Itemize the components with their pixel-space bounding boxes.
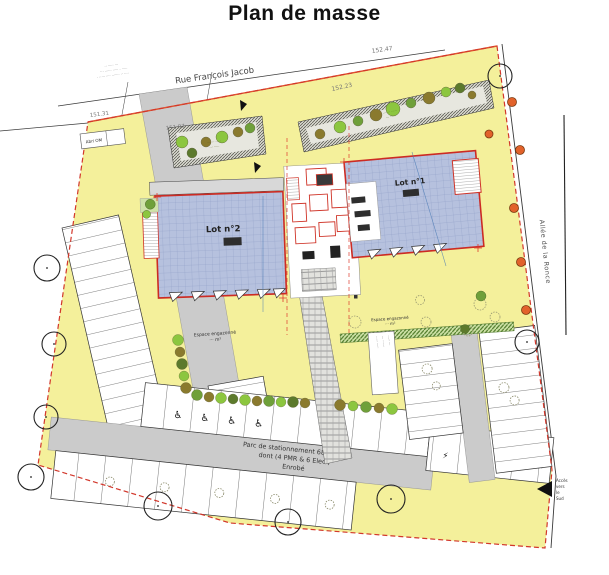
street-note: ·· ····· ··· ··· ······ ····· · ····· · … [95, 61, 129, 79]
building-lot1: Lot n°1 [344, 150, 486, 260]
svg-text:vers: vers [556, 484, 565, 489]
wheelchair-icon: ♿ [173, 410, 183, 422]
dim-151-31: 151.31 [90, 111, 110, 119]
lot1-stair [452, 158, 481, 194]
lot2-stair-annex [143, 212, 160, 258]
wheelchair-icon: ♿ [254, 418, 264, 430]
dim-152-47: 152.47 [371, 45, 393, 55]
site-plan-drawing: ♿ ♿ ♿ ♿ ⚡ ⚡ ⚡ ⚡ ⚡ Parc de stationnement … [0, 0, 609, 575]
svg-text:le: le [556, 490, 560, 495]
lot2-label: Lot n°2 [206, 224, 241, 235]
street-east-label: Allée de la Ronce [538, 219, 553, 284]
lot2-core [223, 237, 241, 246]
lot2-roof [155, 192, 286, 298]
east-stall-col-left [399, 344, 464, 440]
wheelchair-icon: ♿ [227, 415, 237, 427]
svg-text:··· m²: ··· m² [209, 338, 221, 344]
path-note-box: ····· ····· ··· ······ ····· ··· [368, 331, 398, 395]
lawn-marker [354, 295, 358, 299]
lot1-core [403, 189, 420, 197]
wheelchair-icon: ♿ [200, 413, 210, 425]
building-lot2: Lot n°2 [139, 178, 287, 303]
svg-text:Sud: Sud [556, 496, 564, 501]
plan-de-masse-page: Plan de masse [0, 0, 609, 575]
elec-icon: ⚡ [442, 451, 449, 462]
svg-text:··· m²: ··· m² [385, 321, 396, 327]
svg-text:Accès: Accès [556, 478, 568, 483]
